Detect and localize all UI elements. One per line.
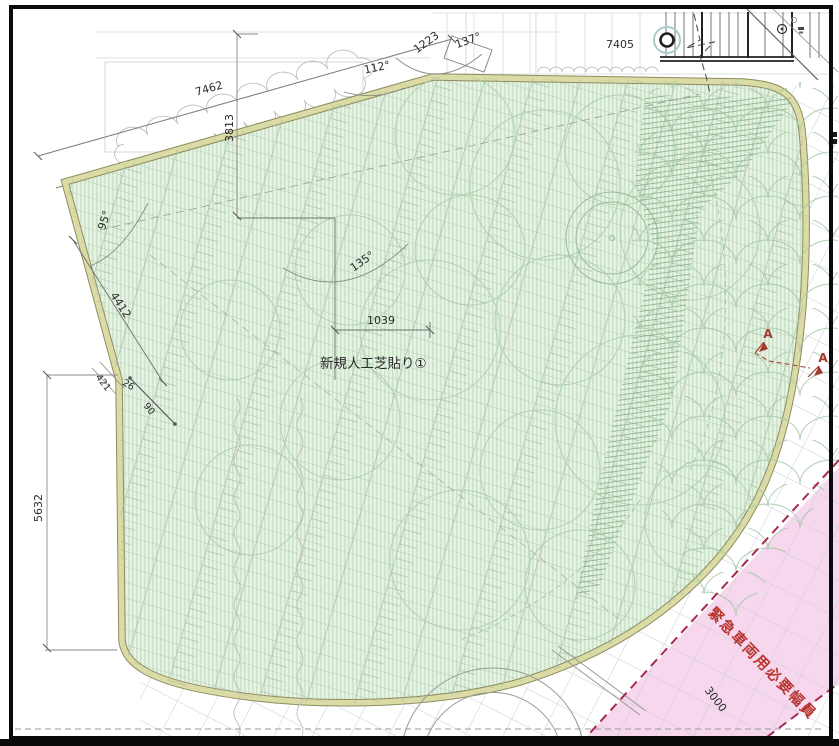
dim-step-width: 1039	[367, 314, 395, 327]
dim-top-width: 7405	[606, 38, 634, 51]
site-plan-canvas: 緊急車両用必要幅員 3000 A A	[0, 0, 839, 746]
svg-text:A: A	[763, 327, 773, 341]
dim-left-height: 5632	[32, 494, 45, 522]
area-label: 新規人工芝貼り①	[320, 356, 427, 372]
site-plan-drawing: 緊急車両用必要幅員 3000 A A	[0, 0, 839, 746]
dim-vertical-top: 3813	[223, 114, 236, 142]
svg-text:A: A	[818, 351, 828, 365]
bottom-frame-bar	[0, 739, 839, 746]
